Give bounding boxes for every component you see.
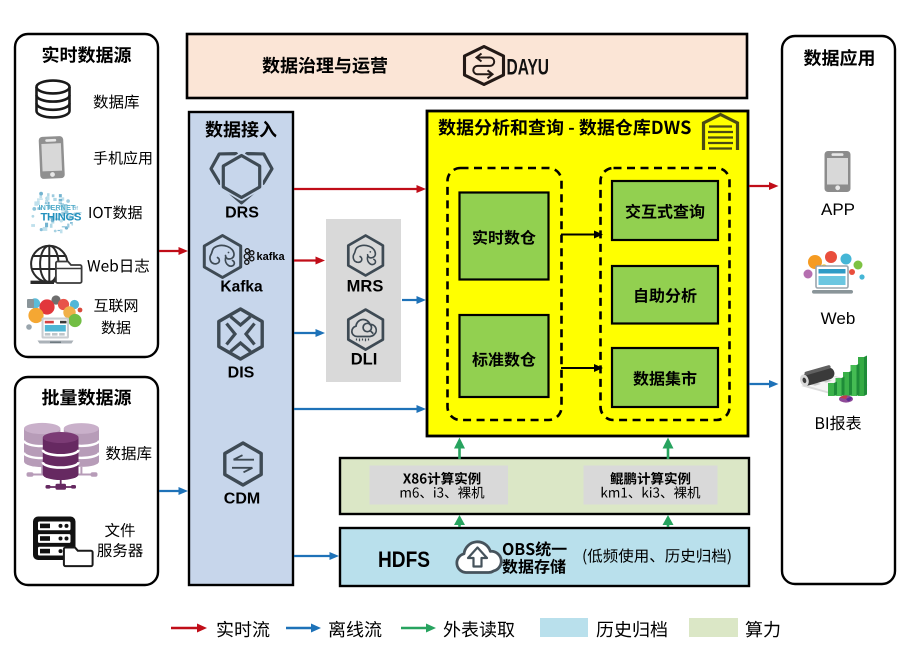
- svg-text:DLI: DLI: [351, 351, 378, 369]
- svg-text:Web: Web: [821, 309, 856, 328]
- svg-text:DAYU: DAYU: [507, 55, 550, 80]
- svg-text:kafka: kafka: [257, 251, 286, 263]
- svg-text:THINGS: THINGS: [41, 212, 82, 224]
- svg-text:CDM: CDM: [224, 491, 260, 508]
- svg-text:DRS: DRS: [225, 205, 259, 222]
- svg-text:Kafka: Kafka: [220, 279, 263, 296]
- svg-text:MRS: MRS: [347, 278, 384, 296]
- svg-text:APP: APP: [821, 200, 855, 219]
- svg-text:DIS: DIS: [228, 365, 255, 382]
- svg-text:HDFS: HDFS: [378, 547, 430, 572]
